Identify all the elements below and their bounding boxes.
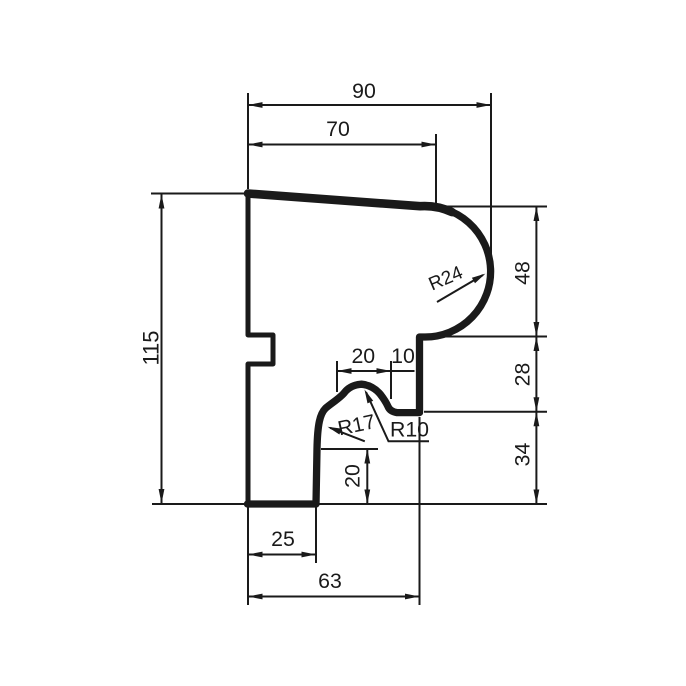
svg-text:115: 115 (139, 330, 164, 365)
svg-text:34: 34 (511, 443, 535, 467)
svg-text:90: 90 (352, 79, 376, 103)
svg-text:48: 48 (511, 261, 535, 285)
svg-text:10: 10 (391, 344, 415, 368)
svg-text:R10: R10 (390, 418, 429, 442)
svg-text:28: 28 (511, 363, 535, 387)
svg-text:20: 20 (351, 344, 375, 368)
svg-text:25: 25 (271, 527, 295, 551)
svg-text:20: 20 (341, 464, 365, 488)
svg-text:70: 70 (326, 117, 350, 141)
svg-text:63: 63 (318, 569, 342, 593)
